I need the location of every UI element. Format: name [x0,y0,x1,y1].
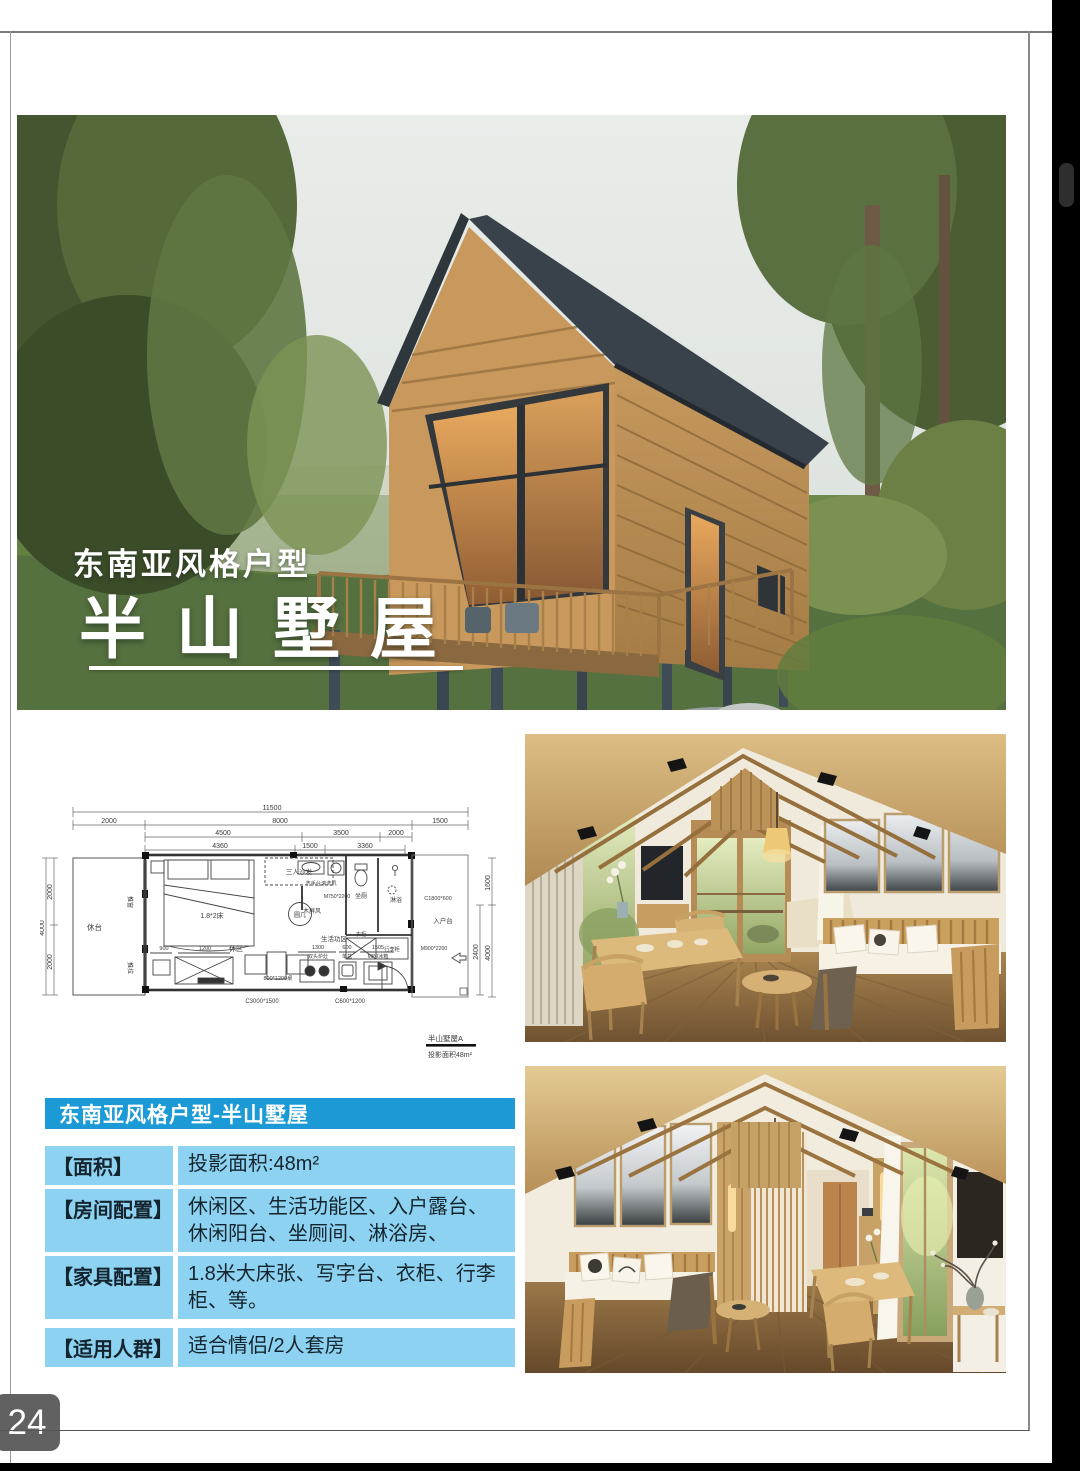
svg-text:2000: 2000 [47,884,54,900]
plan-caption-area: 投影面积48m² [428,1050,473,1059]
dim-label: 1300 [312,945,324,951]
terrace-label: 休台 [87,922,102,932]
svg-text:2000: 2000 [47,954,54,970]
entry-label: 入户台 [433,916,453,925]
luggage-label: 行李柜 [384,945,400,953]
top-rule [0,31,1052,33]
svg-text:11500: 11500 [263,805,282,812]
svg-text:4000: 4000 [485,945,492,961]
wall-sconce-left [728,1184,736,1232]
terrace-outline [73,858,145,995]
right-black-strip [1052,0,1080,1471]
row-value-furniture: 1.8米大床张、写字台、衣柜、行李柜、等。 [178,1256,515,1319]
svg-text:2400: 2400 [473,944,480,960]
bottom-black-bar [0,1463,1080,1471]
brochure-page: 24 [0,0,1080,1471]
row-value-rooms: 休闲区、生活功能区、入户露台、休闲阳台、坐厕间、淋浴房、 [178,1189,515,1252]
svg-text:4500: 4500 [215,830,231,837]
svg-text:3500: 3500 [333,830,349,837]
floor-plan-drawing: 11500 2000 8000 1500 4500 3500 2000 4360… [40,790,535,1080]
interior-photo-2-art [525,1066,1006,1373]
sliding-door-label: 推拉 [126,962,134,974]
dimension-labels-right: 2400 1600 4000 [473,875,492,961]
stove-label: 双头炉灶 [308,953,328,960]
scrollbar-thumb[interactable] [1059,163,1074,207]
svg-text:2000: 2000 [101,818,117,825]
entry-porch [412,855,468,997]
bed-label: 1.8*2床 [200,911,223,920]
dim-label: 1505 [372,945,384,951]
info-table: 东南亚风格户型-半山墅屋 【面积】 投影面积:48m² 【房间配置】 休闲区、生… [45,1098,515,1371]
plan-caption: 半山墅屋A 投影面积48m² [426,1033,476,1059]
svg-text:8000: 8000 [272,818,288,825]
entry-door [378,962,408,990]
dim-label: 1200 [199,946,211,952]
page-number: 24 [8,1403,47,1443]
rest-area-label: 休区 [229,944,243,953]
living-area-label: 生活功区 [321,934,348,943]
interior-photo-1-art [525,734,1006,1042]
interior-photo-2 [525,1066,1006,1373]
tv [641,846,683,900]
toilet-label: 坐厕 [355,892,367,900]
wardrobe-label: 衣柜 [356,930,366,938]
screen-label: 木屏风 [303,907,321,915]
door-label: M900*2200 [421,946,448,952]
svg-text:1500: 1500 [302,843,318,850]
table-row: 【家具配置】 1.8米大床张、写字台、衣柜、行李柜、等。 [45,1256,515,1319]
svg-text:2000: 2000 [388,830,404,837]
footer-rule [0,1430,1029,1431]
info-table-body: 【面积】 投影面积:48m² 【房间配置】 休闲区、生活功能区、入户露台、休闲阳… [45,1146,515,1367]
svg-text:4360: 4360 [212,843,228,850]
table-row: 【适用人群】 适合情侣/2人套房 [45,1328,515,1367]
interior-photo-1 [525,734,1006,1042]
hero-title-underline [89,666,463,670]
window-label: C1800*600 [424,896,452,902]
row-label-audience: 【适用人群】 [45,1328,173,1367]
dim-label: 600 [342,945,351,951]
svg-text:1600: 1600 [485,875,492,891]
page-number-badge: 24 [0,1394,60,1451]
row-value-audience: 适合情侣/2人套房 [178,1328,515,1367]
info-table-header: 东南亚风格户型-半山墅屋 [45,1098,515,1129]
washstand-label: 洗手台滚洗机 [305,879,337,887]
svg-text:3360: 3360 [357,843,373,850]
house-walls [142,852,415,993]
row-label-rooms: 【房间配置】 [45,1189,173,1252]
row-label-furniture: 【家具配置】 [45,1256,173,1319]
dimension-labels-left: 4000 2000 2000 [40,884,54,970]
row-value-area: 投影面积:48m² [178,1146,515,1185]
left-rule [10,31,11,1463]
hero-photo: 东南亚风格户型 半山墅屋 [17,115,1006,710]
table-row: 【面积】 投影面积:48m² [45,1146,515,1185]
dimension-lines-top [73,807,468,855]
table-row: 【房间配置】 休闲区、生活功能区、入户露台、休闲阳台、坐厕间、淋浴房、 [45,1189,515,1252]
shower-label: 淋浴 [390,896,402,904]
window-label: C3000*1500 [245,999,279,1005]
row-label-area: 【面积】 [45,1146,173,1185]
plan-caption-title: 半山墅屋A [428,1033,463,1043]
push-window-label: 推窗 [126,896,134,908]
floor-plan: 11500 2000 8000 1500 4500 3500 2000 4360… [40,790,535,1080]
hero-title: 半山墅屋 [79,575,467,672]
dim-label: 900 [159,946,168,952]
right-rule [1028,31,1030,1431]
window-label: C600*1200 [335,999,366,1005]
svg-text:4000: 4000 [40,920,46,936]
desk-table-label: 800*1200桌 [263,974,293,982]
bathroom-fixtures [355,864,398,894]
svg-text:1500: 1500 [432,818,448,825]
